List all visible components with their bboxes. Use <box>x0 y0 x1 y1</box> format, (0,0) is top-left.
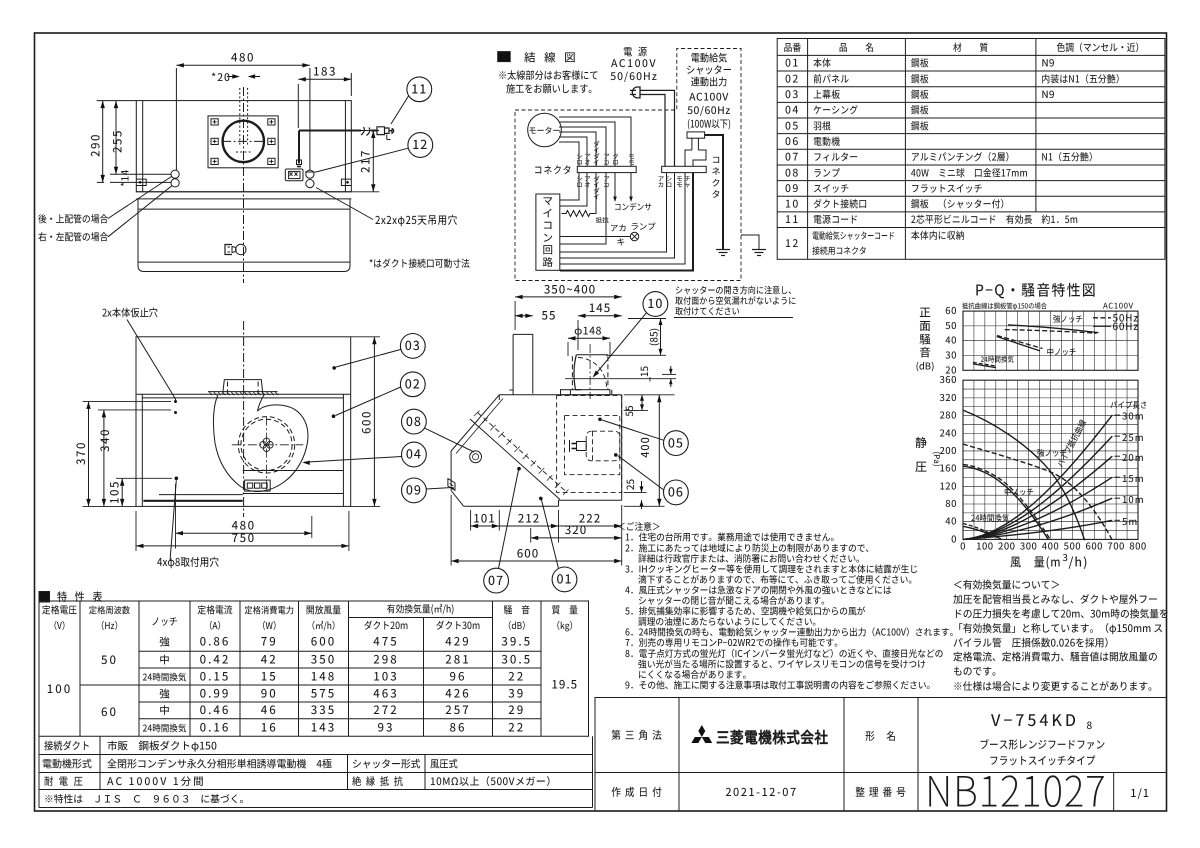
svg-text:定格電流、定格消費電力、騒音値は開放風量の: 定格電流、定格消費電力、騒音値は開放風量の <box>953 648 1158 664</box>
svg-text:形 名: 形 名 <box>865 727 897 743</box>
svg-text:0: 0 <box>951 531 957 545</box>
svg-text:定格電流: 定格電流 <box>197 602 233 617</box>
svg-text:(85): (85) <box>646 328 661 346</box>
svg-text:103: 103 <box>373 668 398 684</box>
svg-text:86: 86 <box>450 719 467 735</box>
svg-text:2芯平形ビニルコード 有効長 約1．5m: 2芯平形ビニルコード 有効長 約1．5m <box>911 212 1078 227</box>
svg-text:2x本体仮止穴: 2x本体仮止穴 <box>102 305 158 320</box>
svg-text:143: 143 <box>311 719 336 735</box>
svg-text:281: 281 <box>445 651 470 667</box>
svg-text:定格消費電力: 定格消費電力 <box>244 603 294 617</box>
svg-text:06: 06 <box>785 134 800 149</box>
svg-text:騒 音: 騒 音 <box>504 602 530 617</box>
svg-text:55: 55 <box>542 308 557 324</box>
svg-text:42: 42 <box>261 651 278 667</box>
svg-text:39.5: 39.5 <box>501 634 532 650</box>
svg-text:05: 05 <box>668 432 684 451</box>
svg-text:ケーシング: ケーシング <box>813 102 859 117</box>
svg-text:290: 290 <box>88 133 104 157</box>
svg-text:800: 800 <box>1129 539 1147 553</box>
svg-text:風圧式: 風圧式 <box>430 756 458 771</box>
svg-text:350~400: 350~400 <box>544 282 596 298</box>
svg-text:開放風量: 開放風量 <box>306 602 341 617</box>
svg-text:*14: *14 <box>117 169 132 187</box>
svg-text:定格電圧: 定格電圧 <box>42 602 77 617</box>
svg-text:272: 272 <box>373 702 398 718</box>
svg-text:8: 8 <box>1087 717 1093 732</box>
svg-text:ダクト接続口: ダクト接続口 <box>813 196 867 211</box>
svg-text:鋼板 （シャッター付）: 鋼板 （シャッター付） <box>911 196 1010 211</box>
svg-text:中ノッチ: 中ノッチ <box>1047 347 1077 359</box>
svg-text:3: 3 <box>1063 550 1068 564</box>
svg-text:イ: イ <box>593 158 599 167</box>
svg-text:320: 320 <box>939 390 957 404</box>
svg-text:風 量(m: 風 量(m <box>1010 553 1061 571</box>
svg-text:鋼板: 鋼板 <box>911 71 929 86</box>
svg-text:強ノッチ: 強ノッチ <box>1053 314 1083 326</box>
svg-text:01: 01 <box>785 56 800 71</box>
svg-text:パイプ長さ: パイプ長さ <box>1110 400 1147 412</box>
svg-text:101: 101 <box>473 510 495 526</box>
svg-text:120: 120 <box>939 478 957 492</box>
svg-text:39: 39 <box>508 685 525 701</box>
svg-text:298: 298 <box>373 651 398 667</box>
svg-text:N9: N9 <box>1041 55 1054 70</box>
svg-text:強ノッチ: 強ノッチ <box>1037 448 1067 460</box>
svg-text:07: 07 <box>785 150 800 165</box>
svg-text:335: 335 <box>311 702 336 718</box>
svg-text:0.86: 0.86 <box>200 634 231 650</box>
svg-text:30.5: 30.5 <box>501 651 532 667</box>
svg-text:03: 03 <box>405 335 421 354</box>
svg-text:0.42: 0.42 <box>200 651 231 667</box>
svg-text:色調（マンセル・近）: 色調（マンセル・近） <box>1056 39 1144 54</box>
svg-text:46: 46 <box>261 702 278 718</box>
svg-text:オ: オ <box>584 158 590 167</box>
svg-text:電動機: 電動機 <box>813 133 840 148</box>
svg-text:05: 05 <box>785 118 800 133</box>
svg-text:400: 400 <box>637 436 653 458</box>
svg-text:右・左配管の場合: 右・左配管の場合 <box>38 229 109 244</box>
svg-text:全閉形コンデンサ永久分相形単相誘導電動機 4極: 全閉形コンデンサ永久分相形単相誘導電動機 4極 <box>107 755 332 770</box>
svg-text:（Hz）: （Hz） <box>96 618 123 632</box>
svg-text:600: 600 <box>517 545 539 561</box>
svg-text:24時間換気: 24時間換気 <box>981 355 1014 366</box>
svg-text:9．その他、施工に関する注意事項は取付工事説明書の内容をご参: 9．その他、施工に関する注意事項は取付工事説明書の内容をご参照ください。 <box>625 677 935 692</box>
svg-text:79: 79 <box>261 634 278 650</box>
svg-text:1/1: 1/1 <box>1130 785 1150 801</box>
svg-text:ランプ: ランプ <box>813 165 840 180</box>
svg-text:429: 429 <box>445 634 470 650</box>
svg-text:ランプ: ランプ <box>631 221 657 233</box>
svg-text:10MΩ以上（500Vメガー）: 10MΩ以上（500Vメガー） <box>430 773 557 788</box>
svg-text:三菱電機株式会社: 三菱電機株式会社 <box>716 726 828 748</box>
svg-text:10: 10 <box>647 293 663 312</box>
svg-text:02: 02 <box>785 71 800 86</box>
svg-text:結 線 図: 結 線 図 <box>524 50 579 66</box>
svg-text:鋼板: 鋼板 <box>911 55 929 70</box>
svg-text:93: 93 <box>378 719 395 735</box>
svg-text:モーター: モーター <box>529 124 561 136</box>
svg-text:カ: カ <box>658 180 664 189</box>
svg-text:183: 183 <box>313 64 337 80</box>
svg-text:40: 40 <box>945 514 957 528</box>
svg-text:320: 320 <box>565 522 587 538</box>
svg-text:耐 電 圧: 耐 電 圧 <box>44 773 85 788</box>
svg-text:4xφ8取付用穴: 4xφ8取付用穴 <box>157 553 219 569</box>
svg-text:24時間換気: 24時間換気 <box>143 670 187 684</box>
svg-text:中ノッチ: 中ノッチ <box>1004 487 1034 499</box>
svg-text:有効換気量(㎥/h): 有効換気量(㎥/h) <box>387 601 455 616</box>
svg-text:16: 16 <box>261 719 278 735</box>
svg-text:80: 80 <box>945 496 957 510</box>
svg-text:600: 600 <box>1085 539 1103 553</box>
svg-text:360: 360 <box>939 372 957 386</box>
svg-text:V−754KD: V−754KD <box>990 707 1079 731</box>
svg-text:29: 29 <box>508 702 525 718</box>
svg-text:09: 09 <box>785 181 800 196</box>
svg-text:475: 475 <box>373 634 398 650</box>
svg-text:羽根: 羽根 <box>813 118 831 133</box>
svg-text:20m: 20m <box>1122 450 1145 464</box>
svg-text:鋼板: 鋼板 <box>911 118 929 133</box>
svg-text:ロ: ロ <box>612 158 618 167</box>
svg-text:(Pa): (Pa) <box>931 451 942 466</box>
svg-text:N9: N9 <box>1041 86 1054 101</box>
svg-text:02: 02 <box>405 374 421 393</box>
svg-text:ドの圧力損失を考慮して20m、30m時の換気量を: ドの圧力損失を考慮して20m、30m時の換気量を <box>953 605 1169 621</box>
svg-text:上幕板: 上幕板 <box>813 86 840 101</box>
svg-text:アルミパンチング（2層）: アルミパンチング（2層） <box>911 149 1015 164</box>
svg-text:（dB）: （dB） <box>503 618 530 632</box>
svg-text:加圧を配管相当長とみなし、ダクトや屋外フー: 加圧を配管相当長とみなし、ダクトや屋外フー <box>953 591 1158 607</box>
svg-text:105: 105 <box>107 480 123 504</box>
svg-text:50/60Hz: 50/60Hz <box>610 69 658 84</box>
svg-text:15m: 15m <box>1122 471 1145 485</box>
svg-text:03: 03 <box>785 87 800 102</box>
svg-text:品番: 品番 <box>784 39 802 54</box>
svg-text:タ: タ <box>711 188 720 201</box>
svg-text:480: 480 <box>231 50 255 66</box>
svg-text:24時間換気: 24時間換気 <box>143 721 187 735</box>
svg-text:フラットスイッチ: フラットスイッチ <box>911 180 983 195</box>
svg-text:鋼板: 鋼板 <box>911 86 929 101</box>
svg-text:電動機形式: 電動機形式 <box>42 755 92 770</box>
svg-text:217: 217 <box>358 149 374 173</box>
svg-text:10: 10 <box>785 197 800 212</box>
svg-text:強: 強 <box>159 635 170 650</box>
svg-text:アカ: アカ <box>610 222 627 234</box>
svg-text:P−Q・騒音特性図: P−Q・騒音特性図 <box>975 279 1097 301</box>
svg-text:96: 96 <box>450 668 467 684</box>
svg-text:鋼板: 鋼板 <box>911 102 929 117</box>
svg-text:強: 強 <box>159 686 170 701</box>
svg-text:電源コード: 電源コード <box>813 212 858 227</box>
svg-text:24時間換気: 24時間換気 <box>971 513 1009 525</box>
svg-text:12: 12 <box>785 236 800 251</box>
svg-text:中: 中 <box>159 703 170 718</box>
svg-text:本体内に収納: 本体内に収納 <box>911 227 965 242</box>
svg-text:15: 15 <box>261 668 278 684</box>
svg-text:600: 600 <box>359 410 375 434</box>
svg-text:モ: モ <box>628 158 634 167</box>
svg-text:09: 09 <box>406 480 422 499</box>
svg-text:絶 縁 抵 抗: 絶 縁 抵 抗 <box>352 773 404 788</box>
svg-text:40W ミニ球 口金径17mm: 40W ミニ球 口金径17mm <box>911 165 1028 180</box>
svg-text:350: 350 <box>311 651 336 667</box>
svg-text:静: 静 <box>915 434 927 451</box>
svg-text:内装はN1（五分艶）: 内装はN1（五分艶） <box>1041 71 1124 86</box>
svg-text:市販 鋼板ダクトφ150: 市販 鋼板ダクトφ150 <box>107 739 217 754</box>
svg-text:電動給気シャッターコード: 電動給気シャッターコード <box>812 230 895 242</box>
svg-text:15: 15 <box>636 366 651 378</box>
svg-text:第 三 角 法: 第 三 角 法 <box>611 726 662 742</box>
svg-text:11: 11 <box>411 79 427 98</box>
svg-text:ブース形レンジフードファン: ブース形レンジフードファン <box>979 736 1105 752</box>
svg-text:ダクト30m: ダクト30m <box>436 617 481 632</box>
svg-text:作 成 日 付: 作 成 日 付 <box>611 783 662 799</box>
svg-text:0.15: 0.15 <box>200 668 231 684</box>
svg-text:22: 22 <box>508 668 525 684</box>
svg-text:750: 750 <box>232 530 256 546</box>
svg-text:257: 257 <box>445 702 470 718</box>
svg-text:01: 01 <box>556 569 572 588</box>
svg-text:12: 12 <box>412 134 428 153</box>
svg-text:コネクタ: コネクタ <box>534 162 573 177</box>
svg-text:定格周波数: 定格周波数 <box>89 603 131 617</box>
svg-text:0.46: 0.46 <box>200 702 231 718</box>
svg-text:ロ: ロ <box>576 158 582 167</box>
svg-text:463: 463 <box>373 685 398 701</box>
svg-text:*はダクト接続口可動寸法: *はダクト接続口可動寸法 <box>369 255 470 270</box>
svg-text:426: 426 <box>445 685 470 701</box>
svg-text:22: 22 <box>508 719 525 735</box>
svg-text:0.16: 0.16 <box>200 719 231 735</box>
svg-text:07: 07 <box>488 570 504 589</box>
svg-text:11: 11 <box>785 212 800 227</box>
svg-text:AC 1000V 1分間: AC 1000V 1分間 <box>107 774 206 789</box>
svg-text:N1（五分艶）: N1（五分艶） <box>1041 149 1098 164</box>
svg-text:280: 280 <box>939 408 957 422</box>
svg-text:※特性は ＪＩＳ Ｃ ９６０３ に基づく。: ※特性は ＪＩＳ Ｃ ９６０３ に基づく。 <box>44 791 249 805</box>
svg-text:08: 08 <box>406 411 422 430</box>
svg-text:/h): /h) <box>1069 552 1089 571</box>
svg-text:300: 300 <box>1020 539 1038 553</box>
svg-text:08: 08 <box>785 165 800 180</box>
svg-text:コンデンサ: コンデンサ <box>614 202 652 214</box>
svg-text:取付けてください: 取付けてください <box>675 305 740 318</box>
svg-text:（㎥/h）: （㎥/h） <box>307 618 340 632</box>
svg-text:（W）: （W） <box>257 618 281 632</box>
svg-text:（A）: （A） <box>204 618 226 632</box>
svg-text:＜有効換気量について＞: ＜有効換気量について＞ <box>953 576 1060 592</box>
svg-text:370: 370 <box>73 441 89 465</box>
svg-text:60: 60 <box>101 704 118 720</box>
svg-text:シャッター形式: シャッター形式 <box>352 755 420 770</box>
svg-text:100: 100 <box>976 539 994 553</box>
svg-text:質 量: 質 量 <box>552 602 578 617</box>
svg-text:φ148: φ148 <box>574 323 602 338</box>
svg-text:90: 90 <box>261 685 278 701</box>
svg-text:モ: モ <box>676 180 682 189</box>
svg-text:06: 06 <box>668 482 684 501</box>
svg-text:10m: 10m <box>1122 492 1145 506</box>
svg-text:後・上配管の場合: 後・上配管の場合 <box>38 211 109 226</box>
svg-text:145: 145 <box>589 300 611 316</box>
svg-text:整 理 番 号: 整 理 番 号 <box>855 783 906 799</box>
svg-text:前パネル: 前パネル <box>813 71 849 86</box>
svg-text:(dB): (dB) <box>916 359 935 373</box>
svg-text:接続用コネクタ: 接続用コネクタ <box>812 244 867 257</box>
svg-text:施工をお願いします。: 施工をお願いします。 <box>506 81 597 96</box>
svg-text:(100W以下): (100W以下) <box>687 115 731 130</box>
svg-text:接続ダクト: 接続ダクト <box>44 738 90 753</box>
svg-text:200: 200 <box>998 539 1016 553</box>
svg-text:圧: 圧 <box>915 458 927 475</box>
svg-text:700: 700 <box>1107 539 1125 553</box>
svg-text:340: 340 <box>97 428 113 452</box>
svg-text:60Hz: 60Hz <box>1113 318 1139 333</box>
svg-text:キ: キ <box>617 236 626 248</box>
svg-text:148: 148 <box>311 668 336 684</box>
svg-text:「有効換気量」と称しています。（φ150mm ス: 「有効換気量」と称しています。（φ150mm ス <box>953 619 1163 635</box>
svg-text:ものです。: ものです。 <box>953 663 1002 679</box>
svg-text:50: 50 <box>101 652 118 668</box>
svg-text:400: 400 <box>1042 539 1060 553</box>
svg-text:（kg）: （kg） <box>552 618 578 632</box>
svg-text:50: 50 <box>945 318 957 332</box>
svg-text:抵抗: 抵抗 <box>596 215 610 225</box>
svg-text:19.5: 19.5 <box>551 677 578 693</box>
svg-text:25: 25 <box>622 479 637 491</box>
svg-text:2x2xφ25天吊用穴: 2x2xφ25天吊用穴 <box>375 211 458 227</box>
svg-text:0: 0 <box>960 539 966 553</box>
svg-text:2021-12-07: 2021-12-07 <box>725 784 797 800</box>
svg-text:212: 212 <box>518 510 540 526</box>
svg-text:40: 40 <box>945 333 957 347</box>
svg-text:カ: カ <box>603 158 609 167</box>
svg-text:30: 30 <box>945 348 957 362</box>
svg-text:0.99: 0.99 <box>200 685 231 701</box>
svg-text:スイッチ: スイッチ <box>813 180 849 195</box>
svg-text:※仕様は場合により変更することがあります。: ※仕様は場合により変更することがあります。 <box>953 678 1158 694</box>
svg-text:品 名: 品 名 <box>839 39 874 54</box>
svg-text:（V）: （V） <box>49 618 71 632</box>
svg-text:*20: *20 <box>211 70 231 85</box>
svg-text:255: 255 <box>110 129 126 153</box>
svg-text:25m: 25m <box>1122 430 1145 444</box>
svg-text:5m: 5m <box>1122 514 1138 528</box>
svg-text:100: 100 <box>47 681 72 697</box>
svg-text:フィルター: フィルター <box>813 149 858 164</box>
svg-text:600: 600 <box>311 634 336 650</box>
svg-text:04: 04 <box>406 444 422 463</box>
svg-text:60: 60 <box>945 303 957 317</box>
svg-text:パイラル管 圧損係数0.026を採用）: パイラル管 圧損係数0.026を採用） <box>953 634 1114 650</box>
svg-text:240: 240 <box>939 425 957 439</box>
svg-text:材 質: 材 質 <box>953 39 988 54</box>
svg-text:NB121027: NB121027 <box>925 758 1106 819</box>
svg-text:連動出力: 連動出力 <box>691 74 728 89</box>
svg-text:抵抗曲線は鋼板管φ150の場合: 抵抗曲線は鋼板管φ150の場合 <box>962 300 1047 311</box>
svg-text:04: 04 <box>785 103 800 118</box>
svg-text:路: 路 <box>543 255 554 270</box>
svg-text:ダクト20m: ダクト20m <box>364 617 409 632</box>
svg-text:中: 中 <box>159 652 170 667</box>
svg-text:本体: 本体 <box>813 55 831 70</box>
svg-text:ノッチ: ノッチ <box>151 613 177 628</box>
svg-text:575: 575 <box>311 685 336 701</box>
